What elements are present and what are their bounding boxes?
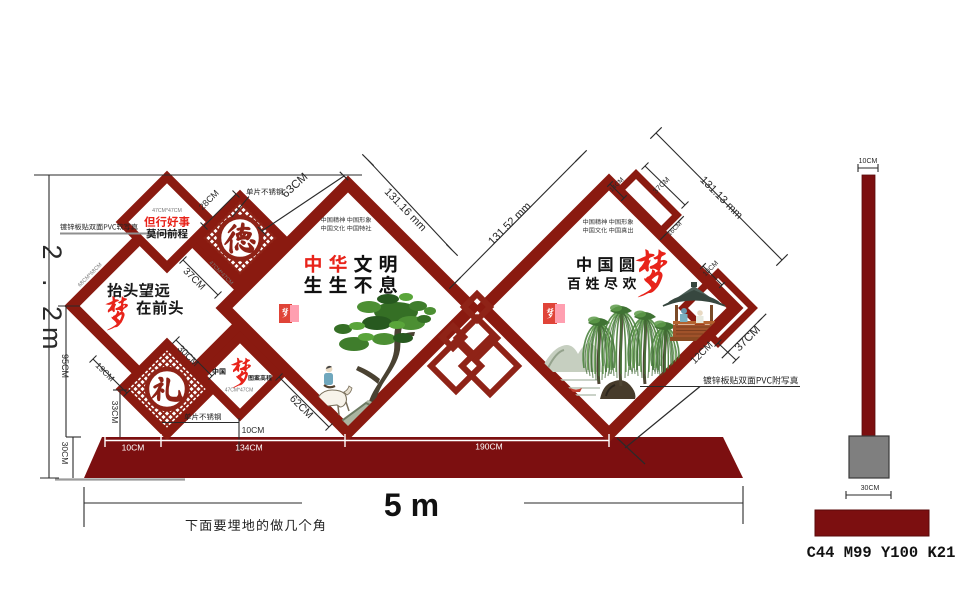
svg-text:30CM: 30CM: [861, 485, 880, 492]
svg-text:134CM: 134CM: [235, 443, 262, 453]
svg-text:30CM: 30CM: [60, 442, 70, 465]
svg-text:190CM: 190CM: [475, 442, 502, 452]
svg-text:95CM: 95CM: [60, 354, 70, 378]
svg-text:2 . 2m: 2 . 2m: [37, 244, 67, 355]
svg-text:33CM: 33CM: [110, 401, 120, 424]
svg-text:47CM*47CM: 47CM*47CM: [225, 388, 254, 394]
svg-text:10CM: 10CM: [859, 158, 878, 165]
svg-text:5m: 5m: [384, 487, 448, 523]
svg-text:10CM: 10CM: [242, 425, 265, 435]
svg-text:C44 M99 Y100 K21: C44 M99 Y100 K21: [807, 544, 956, 562]
svg-text:47CM*47CM: 47CM*47CM: [152, 208, 182, 214]
svg-text:10CM: 10CM: [122, 443, 145, 453]
